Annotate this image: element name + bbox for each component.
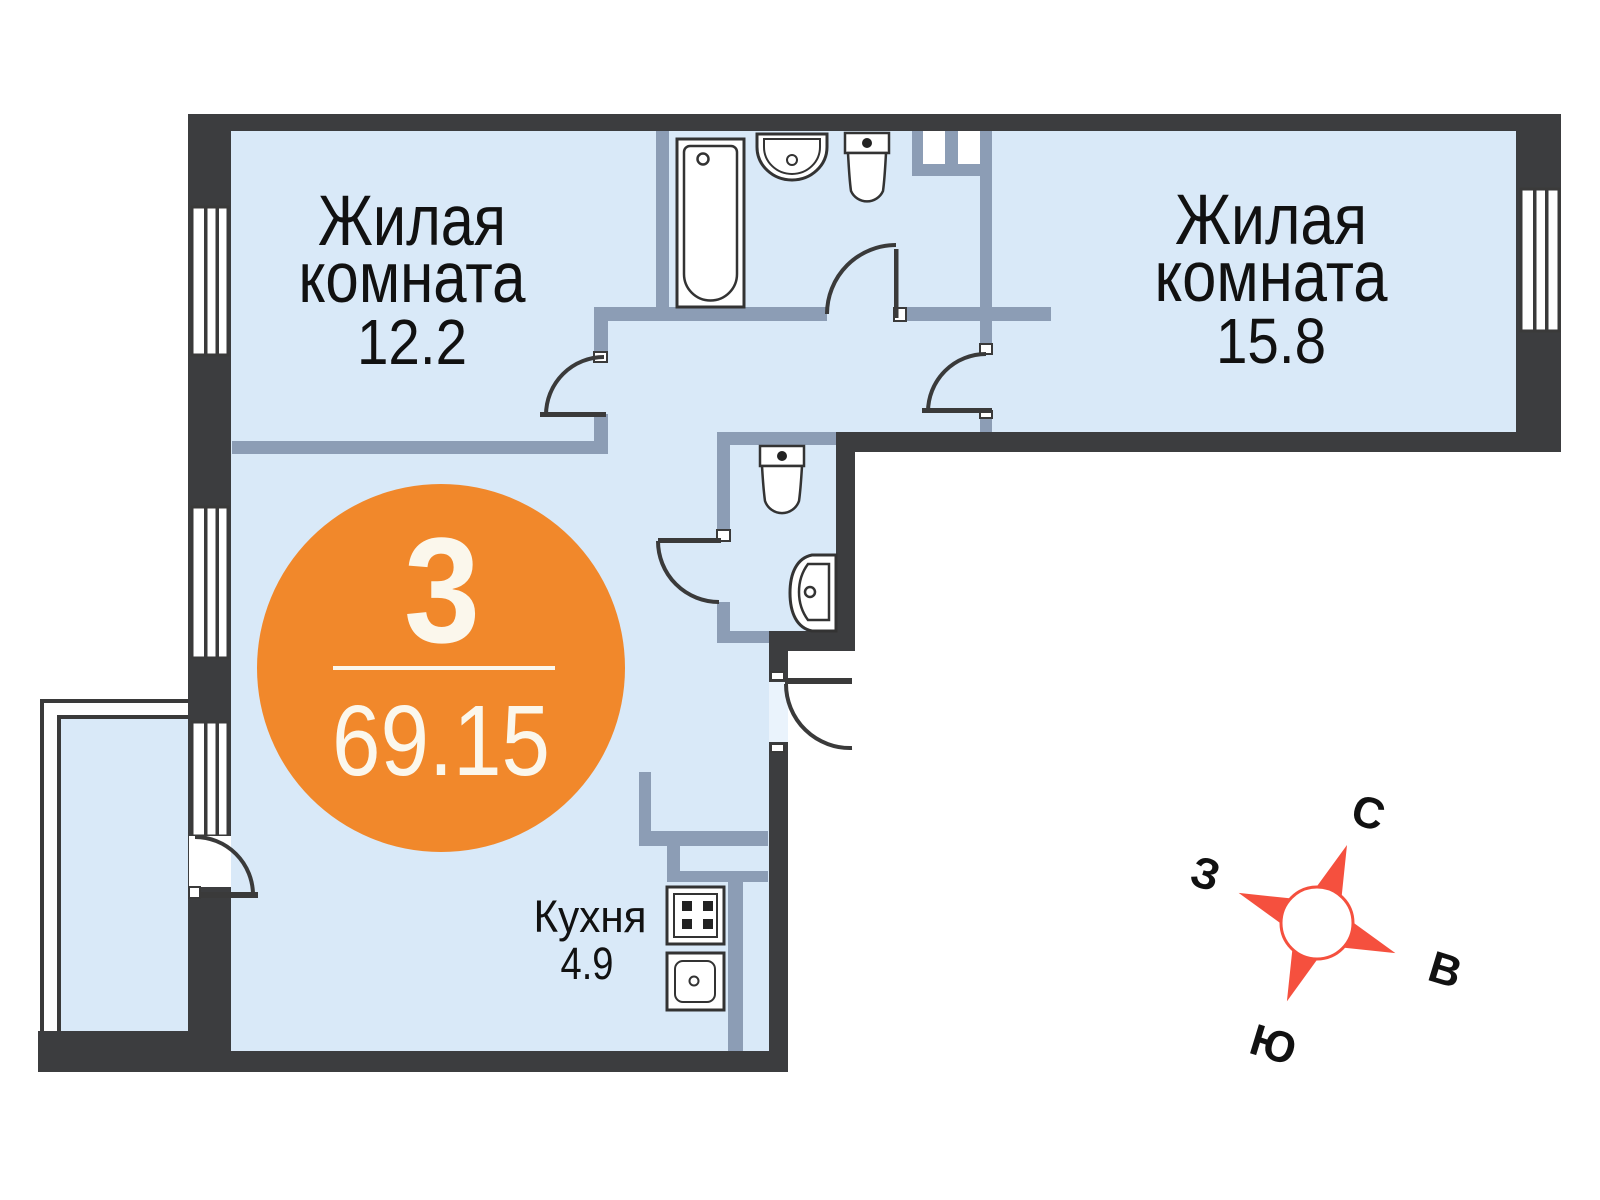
svg-text:Кухня: Кухня [534, 891, 647, 942]
svg-text:15.8: 15.8 [1216, 305, 1326, 377]
svg-text:4.9: 4.9 [561, 938, 614, 989]
svg-text:69.15: 69.15 [332, 685, 550, 797]
svg-text:12.2: 12.2 [357, 306, 467, 378]
svg-text:3: 3 [404, 506, 480, 674]
